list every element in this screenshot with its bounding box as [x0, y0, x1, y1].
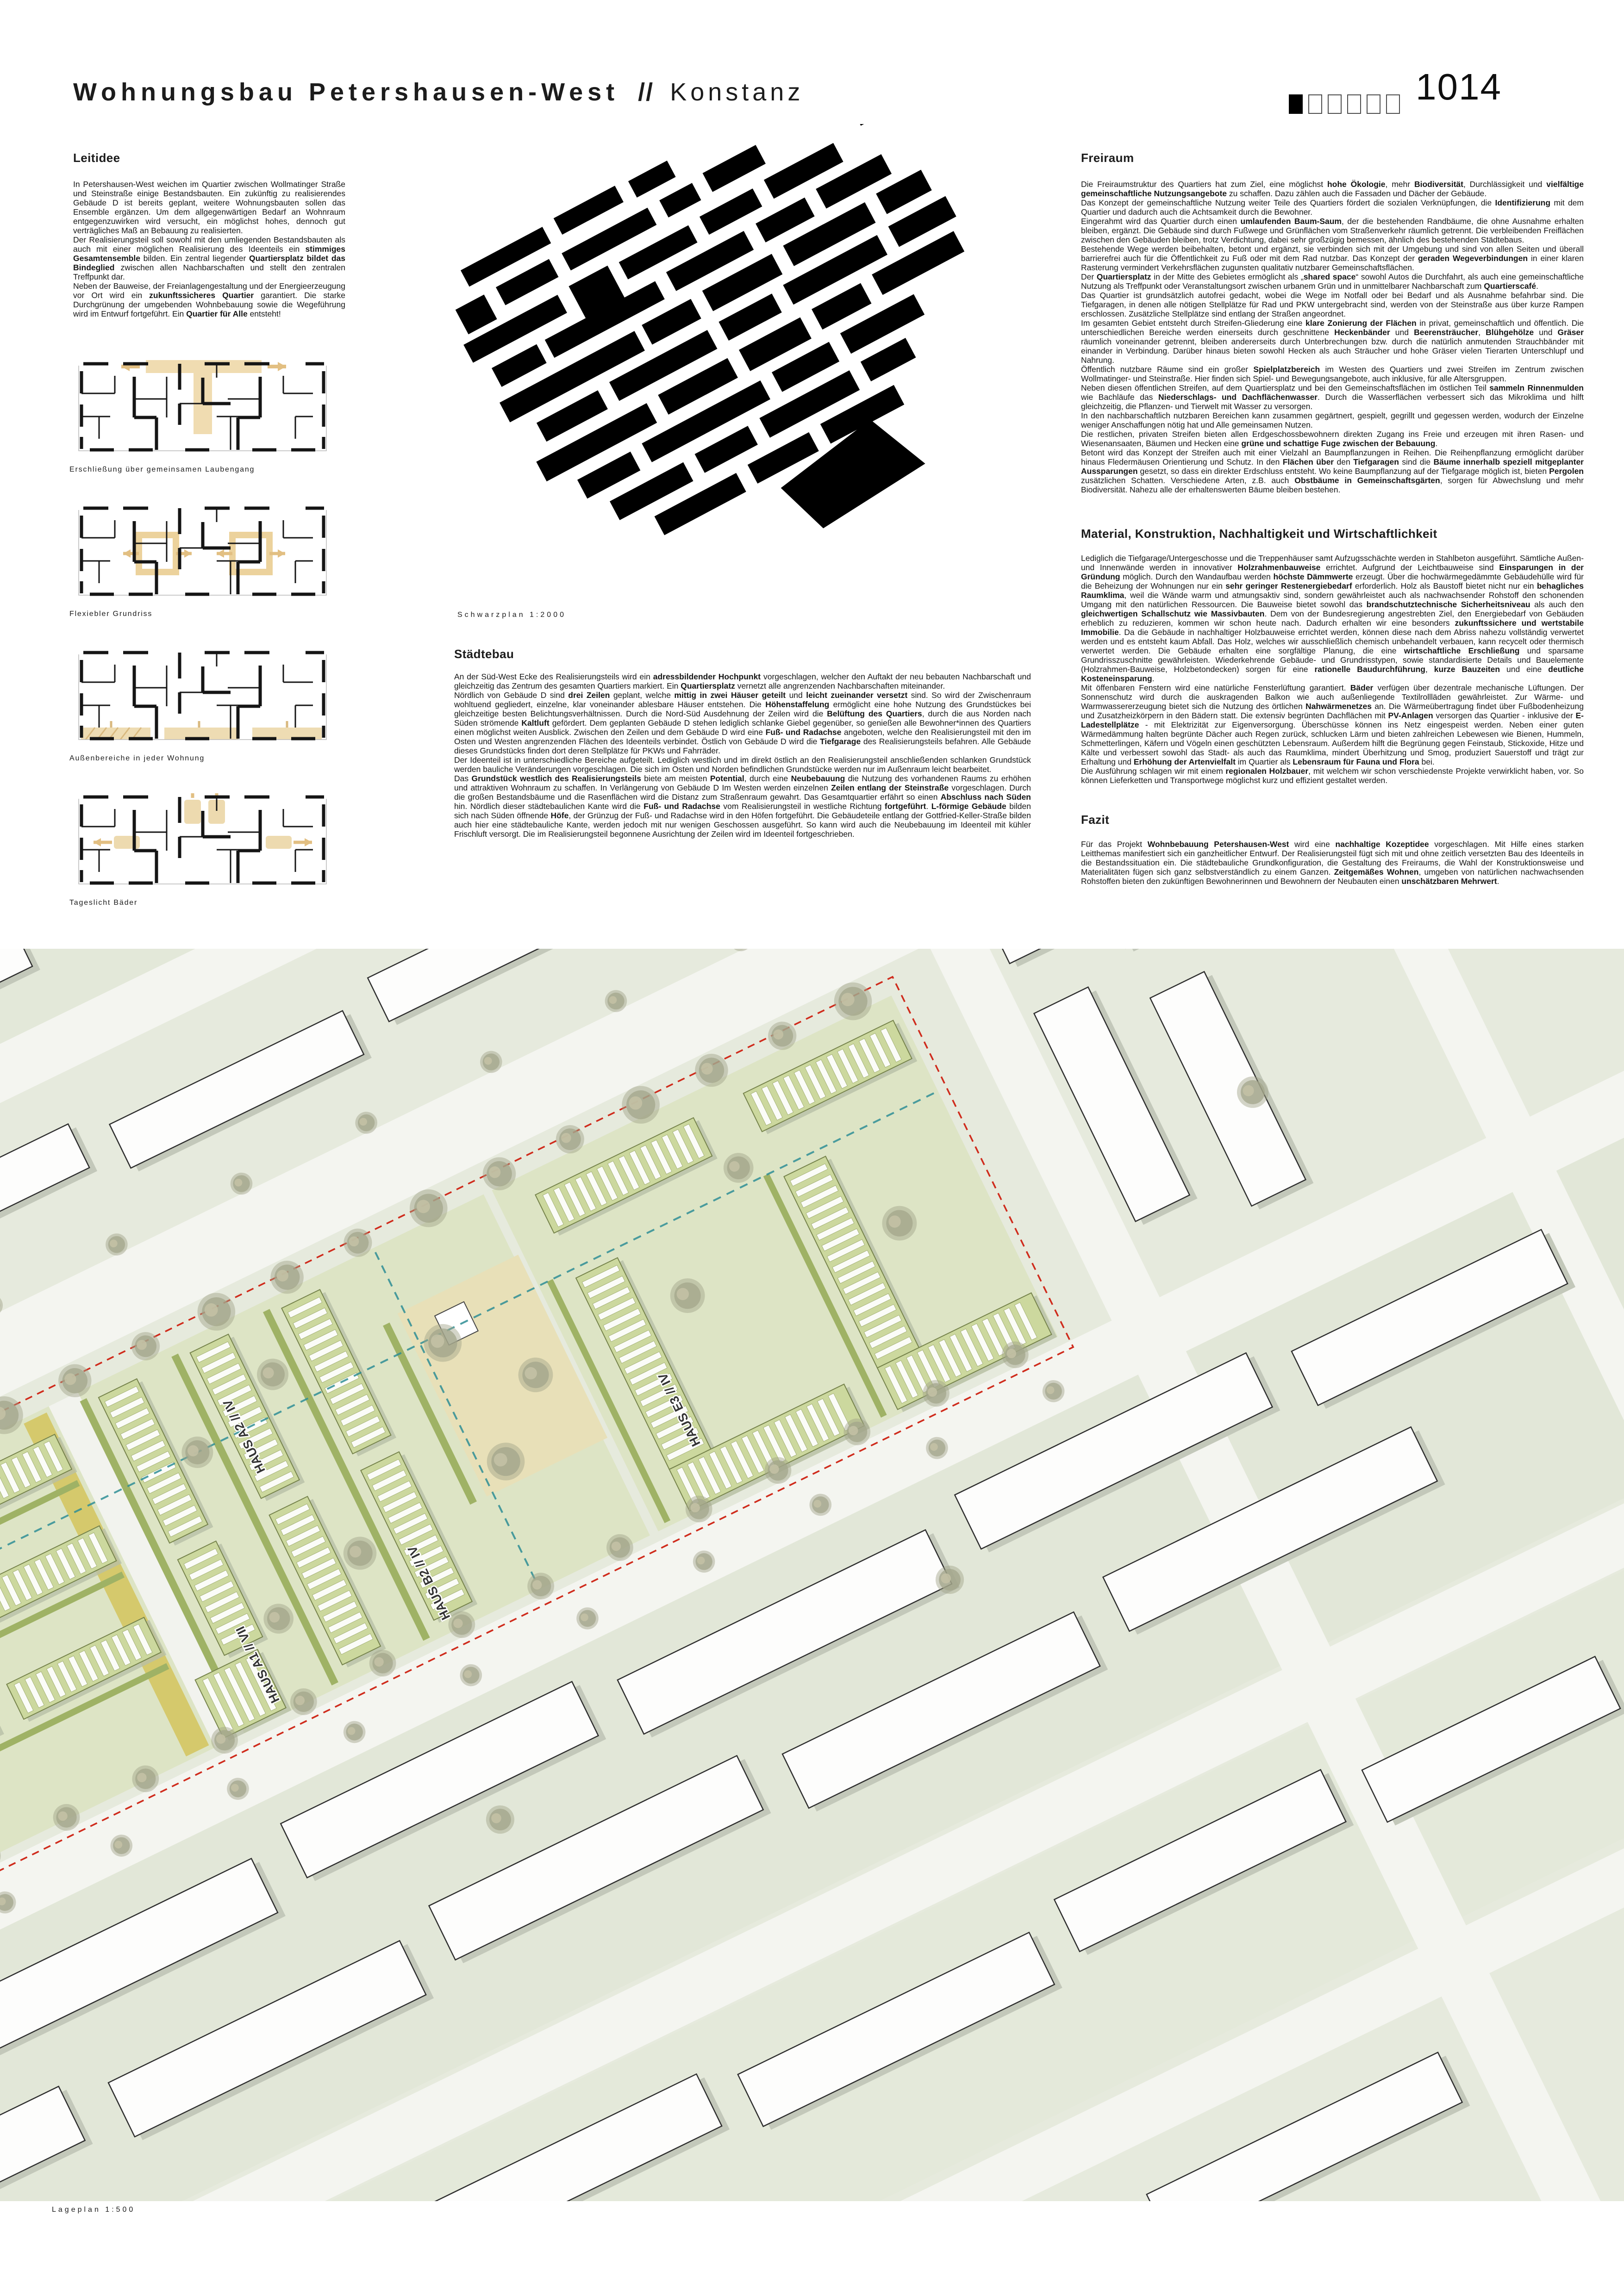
diagram-caption: Erschließung über gemeinsamen Laubengang — [69, 466, 336, 474]
page-indicator-squares — [1289, 94, 1400, 114]
diagram-tageslicht-baeder: Tageslicht Bäder — [69, 781, 336, 907]
paragraph: Mit öffenbaren Fenstern wird eine natürl… — [1081, 683, 1584, 766]
section-text-leitidee: In Petershausen-West weichen im Quartier… — [73, 180, 345, 318]
siteplan-figure: HAUS A1 // VII HAUS A2 // IV HAUS B // I… — [0, 949, 1624, 2201]
diagram-laubengang: Erschließung über gemeinsamen Laubengang — [69, 348, 336, 474]
paragraph: Lediglich die Tiefgarage/Untergeschosse … — [1081, 554, 1584, 683]
outdoor-highlight — [81, 721, 322, 740]
paragraph: Neben der Bauweise, der Freianlagengesta… — [73, 281, 345, 318]
section-text-material: Lediglich die Tiefgarage/Untergeschosse … — [1081, 554, 1584, 785]
section-heading-fazit: Fazit — [1081, 813, 1109, 827]
title-city: Konstanz — [670, 78, 804, 106]
indicator-square-filled — [1289, 94, 1303, 114]
paragraph: In den nachbarschaftlich nutzbaren Berei… — [1081, 411, 1584, 429]
diagram-flexibler-grundriss: Flexiebler Grundriss — [69, 492, 336, 618]
paragraph: Nördlich von Gebäude D sind drei Zeilen … — [454, 691, 1031, 755]
indicator-square-empty — [1347, 94, 1361, 114]
paragraph: Das Konzept der gemeinschaftliche Nutzun… — [1081, 198, 1584, 217]
poster-title: Wohnungsbau Petershausen-West // Konstan… — [73, 78, 804, 106]
paragraph: An der Süd-West Ecke des Realisierungste… — [454, 672, 1031, 691]
paragraph: Das Grundstück westlich des Realisierung… — [454, 774, 1031, 839]
paragraph: Öffentlich nutzbare Räume sind ein große… — [1081, 365, 1584, 383]
floorplan-drawing — [69, 637, 336, 753]
siteplan-drawing: HAUS A1 // VII HAUS A2 // IV HAUS B // I… — [0, 949, 1624, 2201]
diagram-caption: Außenbereiche in jeder Wohnung — [69, 754, 336, 763]
diagram-aussenbereiche: Außenbereiche in jeder Wohnung — [69, 637, 336, 763]
paragraph: Betont wird das Konzept der Streifen auc… — [1081, 448, 1584, 494]
paragraph: Die restlichen, privaten Streifen bieten… — [1081, 429, 1584, 448]
floorplan-drawing — [69, 348, 336, 464]
siteplan-rotated-grid: HAUS A1 // VII HAUS A2 // IV HAUS B // I… — [0, 949, 1624, 2201]
paragraph: Neben diesen öffentlichen Streifen, auf … — [1081, 383, 1584, 411]
paragraph: In Petershausen-West weichen im Quartier… — [73, 180, 345, 235]
paragraph: Der Realisierungsteil soll sowohl mit de… — [73, 235, 345, 281]
schwarzplan-caption: Schwarzplan 1:2000 — [457, 611, 566, 619]
diagram-caption: Flexiebler Grundriss — [69, 610, 336, 618]
section-heading-staedtebau: Städtebau — [454, 647, 514, 661]
floorplan-drawing — [69, 781, 336, 897]
diagram-caption: Tageslicht Bäder — [69, 899, 336, 907]
paragraph: Der Quartiersplatz in der Mitte des Gebi… — [1081, 272, 1584, 291]
section-heading-material: Material, Konstruktion, Nachhaltigkeit u… — [1081, 527, 1609, 541]
paragraph: Das Quartier ist grundsätzlich autofrei … — [1081, 291, 1584, 318]
paragraph: Bestehende Wege werden beibehalten, beto… — [1081, 244, 1584, 272]
paragraph: Der Ideenteil ist in unterschiedliche Be… — [454, 755, 1031, 774]
floorplan-drawing — [69, 492, 336, 608]
paragraph: Eingerahmt wird das Quartier durch einen… — [1081, 217, 1584, 244]
section-heading-leitidee: Leitidee — [73, 151, 120, 165]
entry-code: 1014 — [1416, 66, 1502, 108]
building-footprints — [439, 124, 1034, 601]
paragraph: Für das Projekt Wohnbebauung Petershause… — [1081, 840, 1584, 886]
section-heading-freiraum: Freiraum — [1081, 151, 1134, 165]
title-project: Wohnungsbau Petershausen-West — [73, 78, 619, 106]
indicator-square-empty — [1328, 94, 1342, 114]
paragraph: Im gesamten Gebiet entsteht durch Streif… — [1081, 318, 1584, 365]
section-text-staedtebau: An der Süd-West Ecke des Realisierungste… — [454, 672, 1031, 839]
indicator-square-empty — [1367, 94, 1380, 114]
paragraph: Die Ausführung schlagen wir mit einem re… — [1081, 766, 1584, 785]
section-text-fazit: Für das Projekt Wohnbebauung Petershause… — [1081, 840, 1584, 886]
figure-ground-plan — [439, 124, 1034, 601]
paragraph: Die Freiraumstruktur des Quartiers hat z… — [1081, 180, 1584, 198]
schwarzplan-figure — [439, 124, 1034, 601]
siteplan-caption: Lageplan 1:500 — [52, 2206, 135, 2214]
section-text-freiraum: Die Freiraumstruktur des Quartiers hat z… — [1081, 180, 1584, 494]
title-separator: // — [638, 78, 654, 106]
indicator-square-empty — [1386, 94, 1400, 114]
indicator-square-empty — [1308, 94, 1322, 114]
